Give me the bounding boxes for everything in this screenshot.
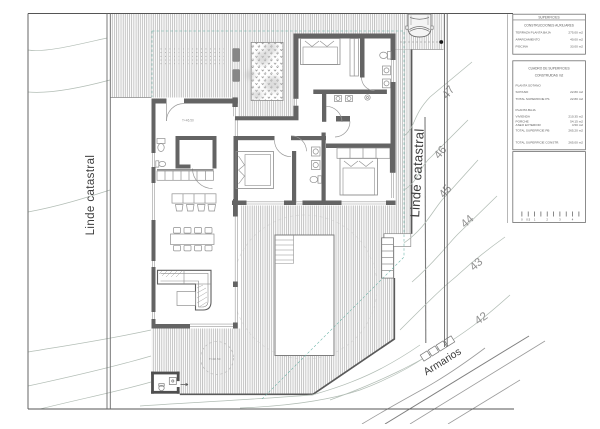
svg-text:210.35 m2: 210.35 m2 xyxy=(568,115,583,119)
svg-text:TOTAL SUPERFICIE CONSTR.: TOTAL SUPERFICIE CONSTR. xyxy=(516,141,560,145)
svg-text:SOTANO: SOTANO xyxy=(516,90,529,94)
svg-text:T=46.50: T=46.50 xyxy=(209,357,221,361)
svg-text:Linde catastral: Linde catastral xyxy=(85,155,97,236)
svg-text:PLANTA SOTANO: PLANTA SOTANO xyxy=(516,84,542,88)
svg-text:265.00 m2: 265.00 m2 xyxy=(568,141,583,145)
svg-text:CONSTRUCCIONES AUXILIARES: CONSTRUCCIONES AUXILIARES xyxy=(524,24,574,28)
svg-text:22.80 m2: 22.80 m2 xyxy=(570,90,583,94)
svg-text:TOTAL SUPERFICIE PS: TOTAL SUPERFICIE PS xyxy=(516,97,550,101)
svg-text:APARCAMIENTO: APARCAMIENTO xyxy=(516,37,541,41)
svg-text:0.5: 0.5 xyxy=(526,218,530,222)
svg-text:265.20 m2: 265.20 m2 xyxy=(568,129,583,133)
svg-text:CONSTRUIDAS m2: CONSTRUIDAS m2 xyxy=(535,74,564,78)
svg-text:PLANTA BAJA: PLANTA BAJA xyxy=(516,108,537,112)
svg-text:22.80 m2: 22.80 m2 xyxy=(570,97,583,101)
svg-text:CUADRO DE SUPERFICIES: CUADRO DE SUPERFICIES xyxy=(528,66,569,70)
svg-text:ASEO EXTERIOR: ASEO EXTERIOR xyxy=(516,123,542,127)
svg-text:TOTAL SUPERFICIE PB: TOTAL SUPERFICIE PB xyxy=(516,129,550,133)
svg-text:33.00 m2: 33.00 m2 xyxy=(570,44,583,48)
svg-text:PISCINA: PISCINA xyxy=(516,44,529,48)
svg-text:SUPERFICIES: SUPERFICIES xyxy=(538,15,559,19)
svg-text:4.50 m2: 4.50 m2 xyxy=(572,123,583,127)
svg-text:275.00 m2: 275.00 m2 xyxy=(568,30,583,34)
svg-text:T+46.50: T+46.50 xyxy=(182,119,194,123)
svg-text:40.00 m2: 40.00 m2 xyxy=(570,37,583,41)
svg-text:TERRAZA PLANTA BAJA: TERRAZA PLANTA BAJA xyxy=(516,30,552,34)
svg-text:VIVIENDA: VIVIENDA xyxy=(516,115,531,119)
